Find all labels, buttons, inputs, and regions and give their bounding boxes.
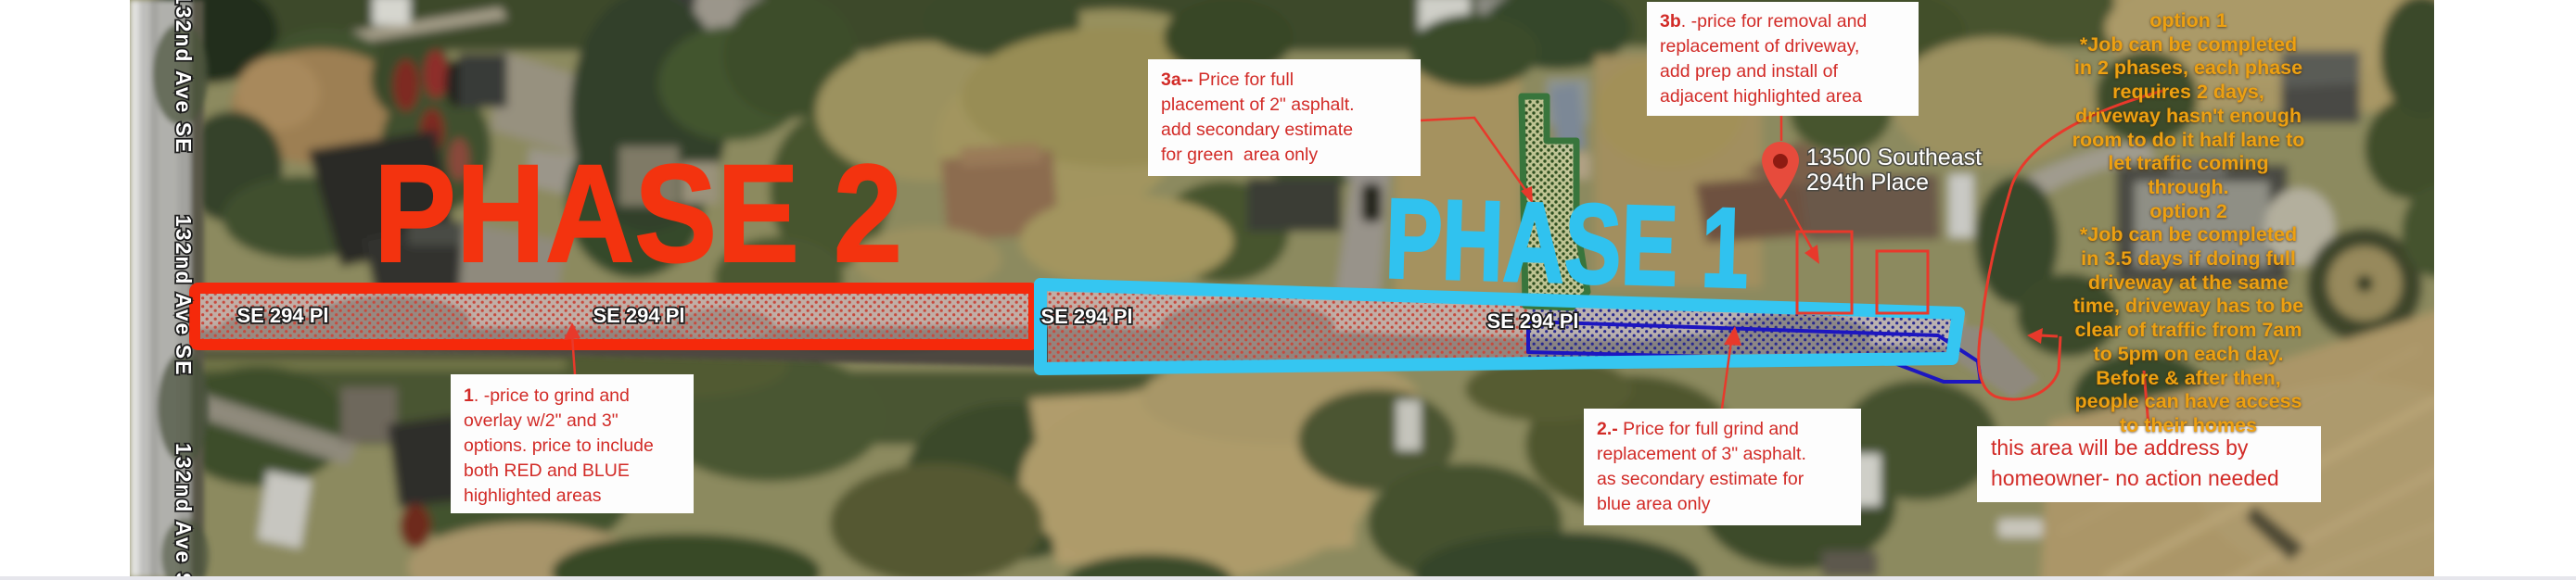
svg-text:SE 294 Pl: SE 294 Pl bbox=[236, 304, 328, 327]
svg-text:SE 294 Pl: SE 294 Pl bbox=[593, 304, 684, 327]
svg-text:132nd Ave SE: 132nd Ave SE bbox=[172, 215, 196, 376]
svg-text:13500 Southeast: 13500 Southeast bbox=[1806, 145, 1982, 170]
svg-text:SE 294 Pl: SE 294 Pl bbox=[1040, 305, 1132, 328]
svg-text:132nd Ave SE: 132nd Ave SE bbox=[172, 443, 196, 577]
svg-text:294th Place: 294th Place bbox=[1806, 170, 1929, 195]
svg-text:SE 294 Pl: SE 294 Pl bbox=[1486, 309, 1578, 333]
svg-text:132nd Ave SE: 132nd Ave SE bbox=[172, 0, 196, 154]
